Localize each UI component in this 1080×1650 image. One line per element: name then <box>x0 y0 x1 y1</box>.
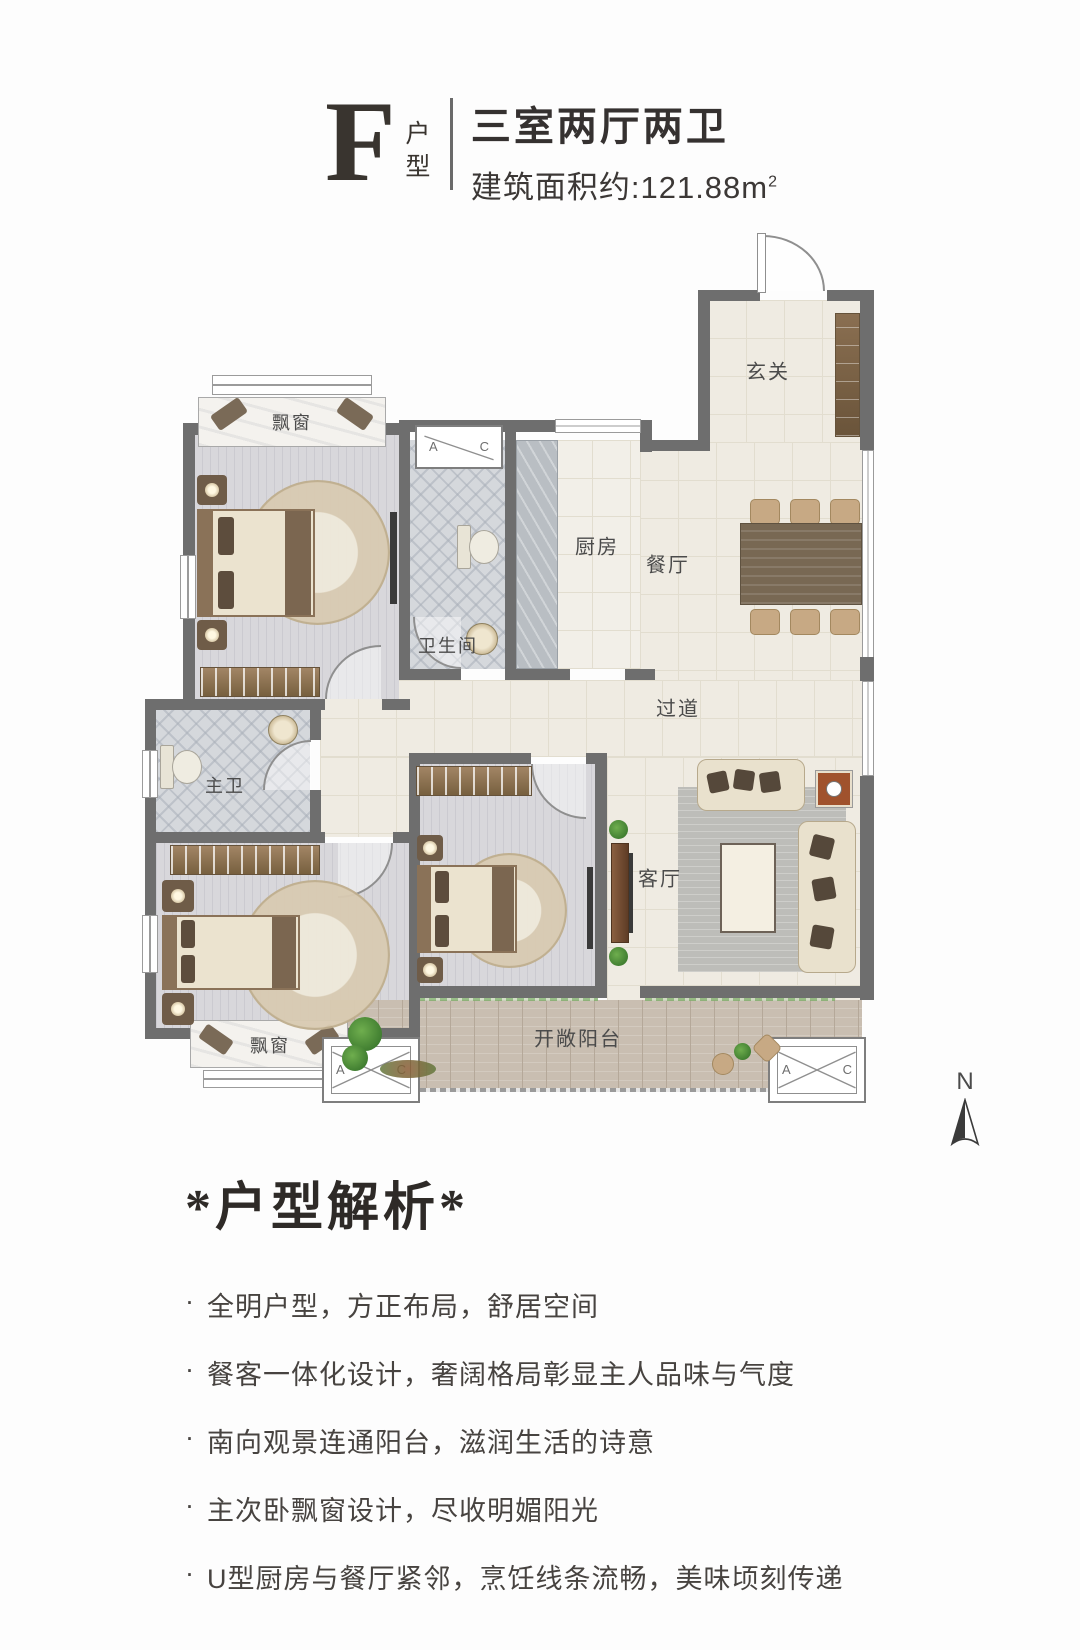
nightstand <box>417 835 443 861</box>
bullet-text: 餐客一体化设计，奢阔格局彰显主人品味与气度 <box>207 1353 795 1392</box>
wall <box>145 832 325 843</box>
bay-window-bottom-glass <box>203 1070 335 1088</box>
analysis-title: *户型解析* <box>185 1165 945 1240</box>
balcony-shrub <box>380 1060 436 1078</box>
tv-living <box>629 853 633 933</box>
analysis-list: ·全明户型，方正布局，舒居空间 ·餐客一体化设计，奢阔格局彰显主人品味与气度 ·… <box>185 1285 945 1596</box>
room-label-bath: 卫生间 <box>418 632 478 658</box>
nightstand <box>162 880 194 912</box>
ac-label-a: A <box>782 1062 791 1077</box>
toilet <box>172 750 202 784</box>
hallway-floor <box>320 680 862 757</box>
ac-shaft-top: A C <box>415 425 503 469</box>
bed-headboard <box>417 865 431 953</box>
bay-window-top-glass <box>212 375 372 395</box>
hallway-stub-floor <box>320 757 409 837</box>
master-bedroom-window <box>142 915 158 973</box>
plan-header: F 户型 三室两厅两卫 建筑面积约:121.88m2 <box>325 92 778 202</box>
nightstand <box>162 993 194 1025</box>
room-label-hallway: 过道 <box>656 693 700 722</box>
nightstand <box>197 620 227 650</box>
nightstand <box>417 957 443 983</box>
wall <box>399 423 410 680</box>
dining-window <box>862 450 874 660</box>
pillow <box>181 920 195 948</box>
rooms-title: 三室两厅两卫 <box>471 94 778 152</box>
pillow <box>435 915 449 947</box>
bullet-text: U型厨房与餐厅紧邻，烹饪线条流畅，美味顷刻传递 <box>207 1557 844 1596</box>
unit-type-letter: F <box>325 92 396 192</box>
room-label-entry: 玄关 <box>746 356 790 385</box>
pillow <box>218 517 234 555</box>
wall <box>310 790 321 832</box>
sofa-long <box>798 821 856 973</box>
wall <box>409 986 607 998</box>
floor-plan: 飘窗 飘窗 A C A C A C 卫生 <box>100 225 980 1135</box>
entry-door-leaf <box>757 233 766 293</box>
analysis-bullet: ·U型厨房与餐厅紧邻，烹饪线条流畅，美味顷刻传递 <box>185 1557 945 1596</box>
pillow <box>435 871 449 903</box>
bullet-marker: · <box>185 1353 195 1385</box>
ac-label-a: A <box>429 439 438 454</box>
dining-chair <box>790 609 820 635</box>
header-divider <box>450 98 453 190</box>
basin <box>268 715 298 745</box>
wall <box>145 699 325 710</box>
room-label-bay-bottom: 飘窗 <box>250 1032 290 1058</box>
analysis-bullet: ·南向观景连通阳台，滋润生活的诗意 <box>185 1421 945 1460</box>
wall <box>505 423 516 669</box>
dining-chair <box>790 499 820 525</box>
wall <box>382 699 410 710</box>
bed-throw <box>285 511 311 615</box>
dining-chair <box>830 499 860 525</box>
room-label-kitchen: 厨房 <box>575 531 619 560</box>
tv-bedroom1 <box>390 512 397 604</box>
entry-door-arc <box>763 235 825 291</box>
side-table <box>816 771 852 807</box>
bullet-marker: · <box>185 1421 195 1453</box>
pillow <box>218 571 234 609</box>
wall <box>640 986 874 998</box>
shoe-cabinet <box>835 313 860 437</box>
area-value: 建筑面积约:121.88m <box>471 170 768 205</box>
loveseat <box>697 759 805 811</box>
bed-throw <box>492 867 514 951</box>
compass: N <box>935 1068 995 1148</box>
plant <box>609 947 628 966</box>
tv-bedroom2 <box>587 867 593 949</box>
compass-n-label: N <box>935 1068 995 1096</box>
analysis-bullet: ·全明户型，方正布局，舒居空间 <box>185 1285 945 1324</box>
dining-table <box>740 523 862 605</box>
bullet-marker: · <box>185 1557 195 1589</box>
compass-arrow-icon <box>945 1098 985 1150</box>
coffee-table <box>720 843 776 933</box>
room-label-bay-top: 飘窗 <box>272 409 312 435</box>
room-label-dining: 餐厅 <box>646 549 690 578</box>
wardrobe-bedroom2 <box>416 766 532 796</box>
kitchen-window <box>555 419 641 433</box>
wall <box>505 669 570 680</box>
bed-throw <box>272 917 296 988</box>
plant <box>609 820 628 839</box>
toilet <box>469 530 499 564</box>
analysis-section: *户型解析* ·全明户型，方正布局，舒居空间 ·餐客一体化设计，奢阔格局彰显主人… <box>185 1165 945 1625</box>
bedroom1-window <box>180 555 196 619</box>
master-bath-window <box>142 750 158 798</box>
bullet-text: 南向观景连通阳台，滋润生活的诗意 <box>207 1421 655 1460</box>
dining-chair <box>750 609 780 635</box>
ac-label-c: C <box>480 439 489 454</box>
nightstand <box>197 475 227 505</box>
bullet-text: 主次卧飘窗设计，尽收明媚阳光 <box>207 1489 599 1528</box>
balcony-table-plant <box>734 1043 751 1060</box>
kitchen-counter <box>516 440 558 669</box>
wall <box>860 776 874 1000</box>
ac-unit-right: A C <box>768 1037 866 1103</box>
unit-type-suffix: 户型 <box>398 120 434 186</box>
tv-cabinet <box>611 843 629 943</box>
wall <box>310 710 321 740</box>
dining-chair <box>830 609 860 635</box>
wall <box>698 295 710 450</box>
wall <box>399 669 461 680</box>
wardrobe-master <box>170 845 320 875</box>
room-label-balcony: 开敞阳台 <box>534 1023 622 1052</box>
pillow <box>181 955 195 983</box>
area-sup: 2 <box>768 174 778 191</box>
living-window <box>862 681 874 776</box>
room-label-master-bath: 主卫 <box>205 772 245 798</box>
bed-headboard <box>162 915 177 990</box>
bullet-marker: · <box>185 1489 195 1521</box>
bullet-marker: · <box>185 1285 195 1317</box>
wall <box>698 290 760 301</box>
wall <box>409 753 531 764</box>
area-text: 建筑面积约:121.88m2 <box>471 162 778 207</box>
ac-label-c: C <box>843 1062 852 1077</box>
bullet-text: 全明户型，方正布局，舒居空间 <box>207 1285 599 1324</box>
analysis-bullet: ·餐客一体化设计，奢阔格局彰显主人品味与气度 <box>185 1353 945 1392</box>
wall <box>145 1028 191 1039</box>
dining-chair <box>750 499 780 525</box>
wall <box>860 657 874 681</box>
wall <box>595 753 607 997</box>
wardrobe-bedroom1 <box>200 667 320 697</box>
bed-headboard <box>197 509 213 617</box>
wall <box>625 669 655 680</box>
room-label-living: 客厅 <box>638 863 682 892</box>
wall <box>860 290 874 450</box>
balcony-chair <box>712 1053 734 1075</box>
balcony-plant <box>342 1045 368 1071</box>
analysis-bullet: ·主次卧飘窗设计，尽收明媚阳光 <box>185 1489 945 1528</box>
